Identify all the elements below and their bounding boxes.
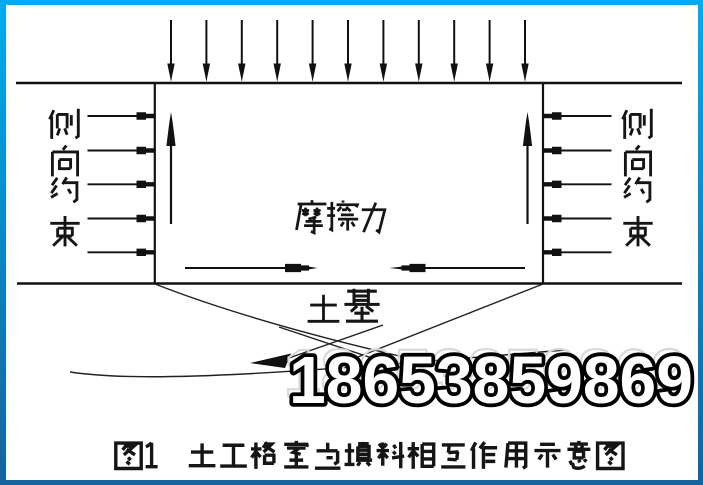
svg-text:18653859869: 18653859869 [289, 343, 693, 418]
